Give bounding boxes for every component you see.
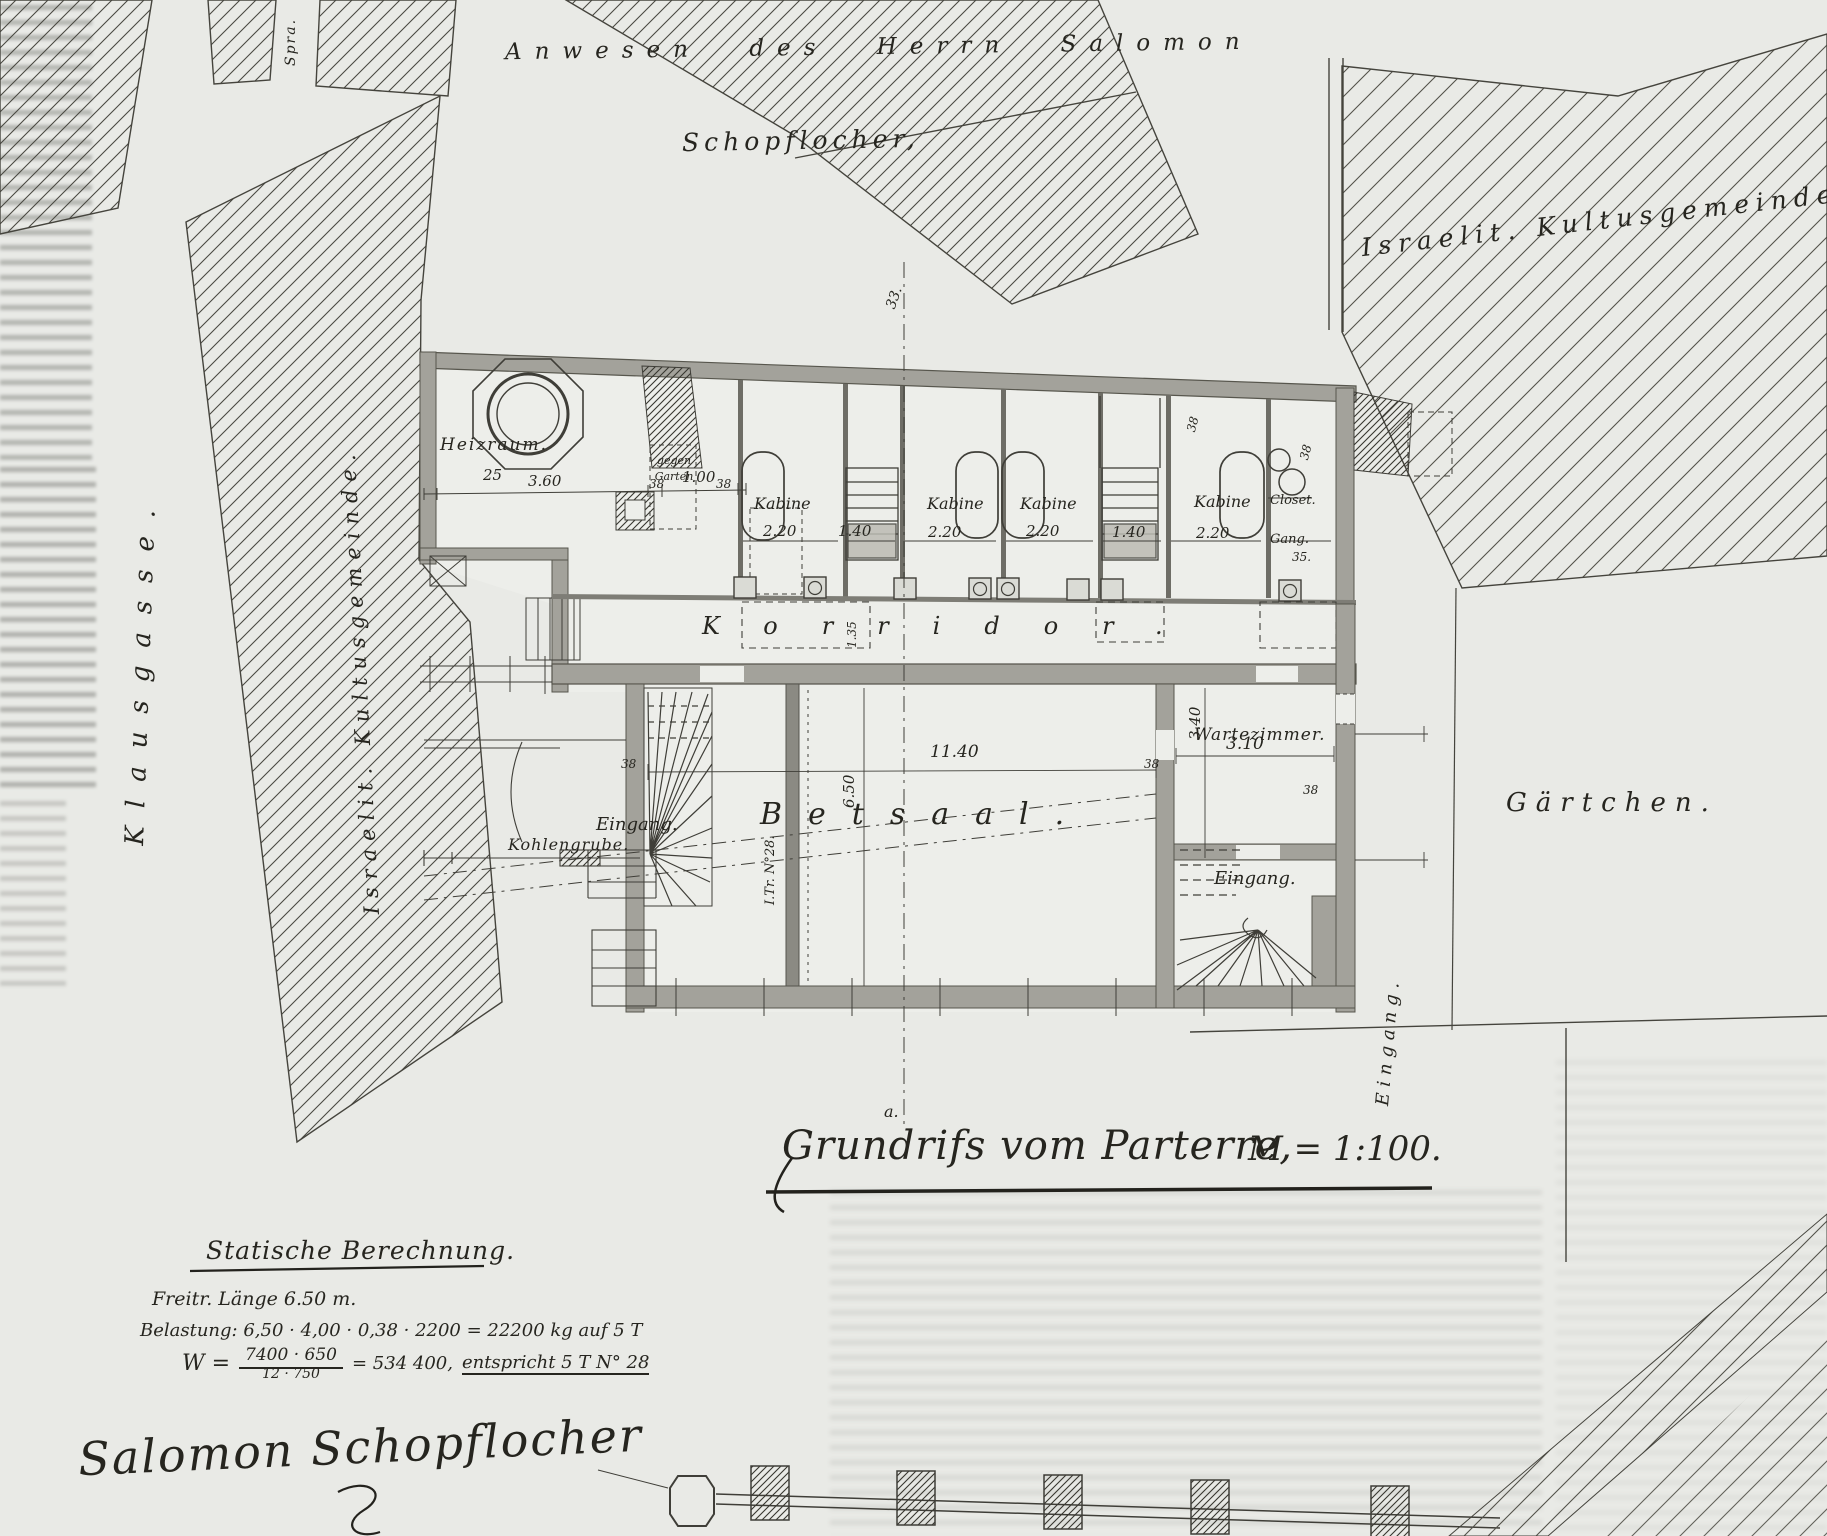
dim-label: 38 [649,478,664,490]
street-label-spra: Spra. [284,18,298,66]
site-label-schopflocher: Schopflocher, [682,126,920,155]
dim-label: 38 [716,478,731,490]
dim-label: 38 [1144,758,1159,770]
statics-line-1: Freitr. Länge 6.50 m. [152,1290,356,1309]
dim-label: 1.40 [1112,525,1145,540]
dim-label: 25 [483,468,502,483]
dim-label: 2.20 [1026,524,1059,539]
statics-w: W = [182,1353,230,1375]
fence [598,1214,1827,1536]
signature-flourish [338,1486,380,1534]
room-label-kabine-2: Kabine [927,496,984,512]
dim-label: 38 [621,758,636,770]
room-label-korridor: Korridor. [702,614,1207,638]
drawing-scale: M = 1:100. [1248,1132,1442,1166]
statics-eq: = 534 400, [352,1355,453,1373]
room-label-heizraum: Heizraum. [440,437,548,454]
dim-label: 38 [1303,784,1318,796]
dim-label: 38 [1298,443,1314,461]
room-label-closet: Closet. [1270,494,1316,507]
statics-line-2: Belastung: 6,50 · 4,00 · 0,38 · 2200 = 2… [140,1322,642,1340]
dim-label: 3.40 [1188,707,1203,740]
drawing-title: Grundrifs vom Parterre, [782,1126,1293,1166]
statics-heading: Statische Berechnung. [206,1238,515,1263]
scanned-floorplan-page: Anwesen des Herrn Salomon Schopflocher, … [0,0,1827,1536]
room-label-gang: Gang. [1270,533,1309,546]
dim-label: 2.20 [928,525,961,540]
dim-label: 6.50 [842,775,857,808]
dim-label: 11.40 [930,744,979,761]
room-label-gegen-garten-1: gegen [652,455,696,466]
dim-label: 38 [1185,415,1201,433]
statics-line-3: W = 7400 · 650 12 · 750 = 534 400, entsp… [182,1346,649,1382]
dim-label: 1.40 [838,524,871,539]
room-label-kabine-4: Kabine [1194,494,1251,510]
dim-label: 3.10 [1226,736,1264,753]
statics-denominator: 12 · 750 [262,1364,320,1382]
room-label-kabine-1: Kabine [754,496,811,512]
dim-label: 1.35 [846,621,858,648]
dim-label: 35. [1292,551,1311,563]
statics-underline [190,1266,484,1271]
room-label-kohlengrube: Kohlengrube. [508,837,629,853]
dim-label: 3.60 [528,474,561,489]
site-label-gaertchen: Gärtchen. [1506,790,1718,816]
dim-label: a. [884,1104,899,1120]
room-label-eingang-left: Eingang. [596,816,678,834]
room-label-kabine-3: Kabine [1020,496,1077,512]
room-label-betsaal: Betsaal. [760,800,1090,830]
dim-label: 1.00 [682,470,715,485]
room-label-eingang-right: Eingang. [1214,870,1296,888]
statics-fraction: 7400 · 650 12 · 750 [239,1346,343,1382]
dim-label: 2.20 [763,524,796,539]
dim-label: 2.20 [1196,526,1229,541]
girder-note: I.Tr. N°28. [764,835,777,905]
statics-result: entspricht 5 T N° 28 [462,1354,650,1375]
